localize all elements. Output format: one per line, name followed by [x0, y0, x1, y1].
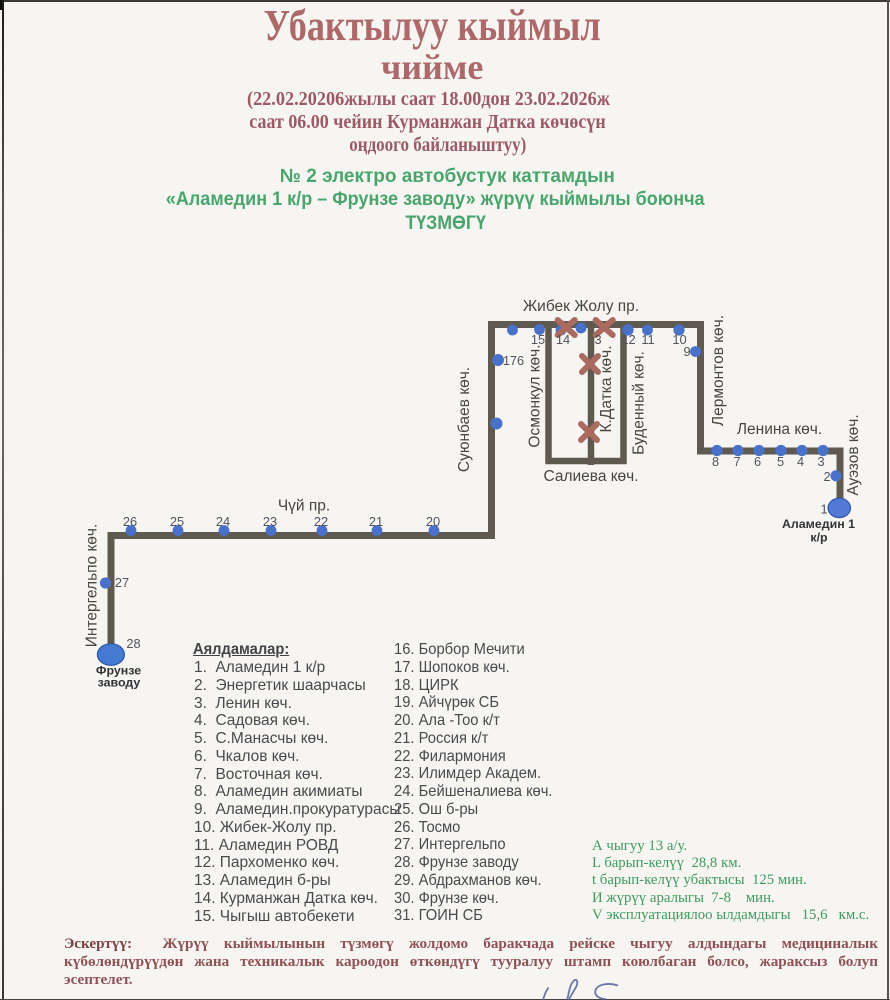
svg-text:Буденный көч.: Буденный көч.: [631, 351, 648, 455]
svg-text:Ленина көч.: Ленина көч.: [737, 421, 822, 438]
svg-text:28: 28: [126, 636, 140, 651]
svg-text:заводу: заводу: [98, 676, 141, 690]
svg-text:14: 14: [556, 332, 570, 347]
svg-text:12: 12: [621, 332, 635, 347]
svg-text:1: 1: [820, 502, 827, 517]
svg-text:176: 176: [503, 353, 524, 368]
svg-text:Интергельпо көч.: Интергельпо көч.: [84, 524, 101, 648]
svg-text:22: 22: [314, 514, 328, 529]
svg-text:к/р: к/р: [810, 531, 828, 545]
svg-text:27: 27: [115, 575, 129, 590]
svg-text:23: 23: [263, 514, 277, 529]
svg-text:11: 11: [641, 332, 654, 347]
svg-text:8: 8: [712, 454, 719, 469]
svg-text:7: 7: [733, 454, 740, 469]
svg-text:Аламедин 1: Аламедин 1: [782, 517, 855, 531]
svg-text:6: 6: [754, 454, 761, 469]
svg-text:Ауэзов көч.: Ауэзов көч.: [845, 414, 862, 495]
svg-text:Суюнбаев көч.: Суюнбаев көч.: [456, 367, 473, 472]
svg-text:9: 9: [683, 344, 690, 359]
svg-text:15: 15: [531, 332, 545, 347]
svg-text:Чүй пр.: Чүй пр.: [278, 498, 330, 515]
svg-text:25: 25: [170, 514, 184, 529]
svg-text:3: 3: [817, 454, 824, 469]
svg-text:20: 20: [426, 514, 440, 529]
svg-text:Лермонтов көч.: Лермонтов көч.: [710, 315, 727, 426]
svg-text:21: 21: [369, 514, 383, 529]
svg-text:Жибек Жолу пр.: Жибек Жолу пр.: [523, 298, 639, 315]
svg-text:24: 24: [216, 514, 230, 529]
svg-text:26: 26: [123, 514, 137, 529]
svg-text:3: 3: [594, 332, 601, 347]
svg-text:К.Датка көч.: К.Датка көч.: [598, 345, 615, 432]
svg-text:Осмонкул көч.: Осмонкул көч.: [527, 344, 544, 447]
svg-text:2: 2: [823, 469, 830, 484]
svg-text:5: 5: [777, 454, 784, 469]
svg-text:4: 4: [797, 454, 804, 469]
svg-text:Салиева көч.: Салиева көч.: [543, 468, 638, 485]
